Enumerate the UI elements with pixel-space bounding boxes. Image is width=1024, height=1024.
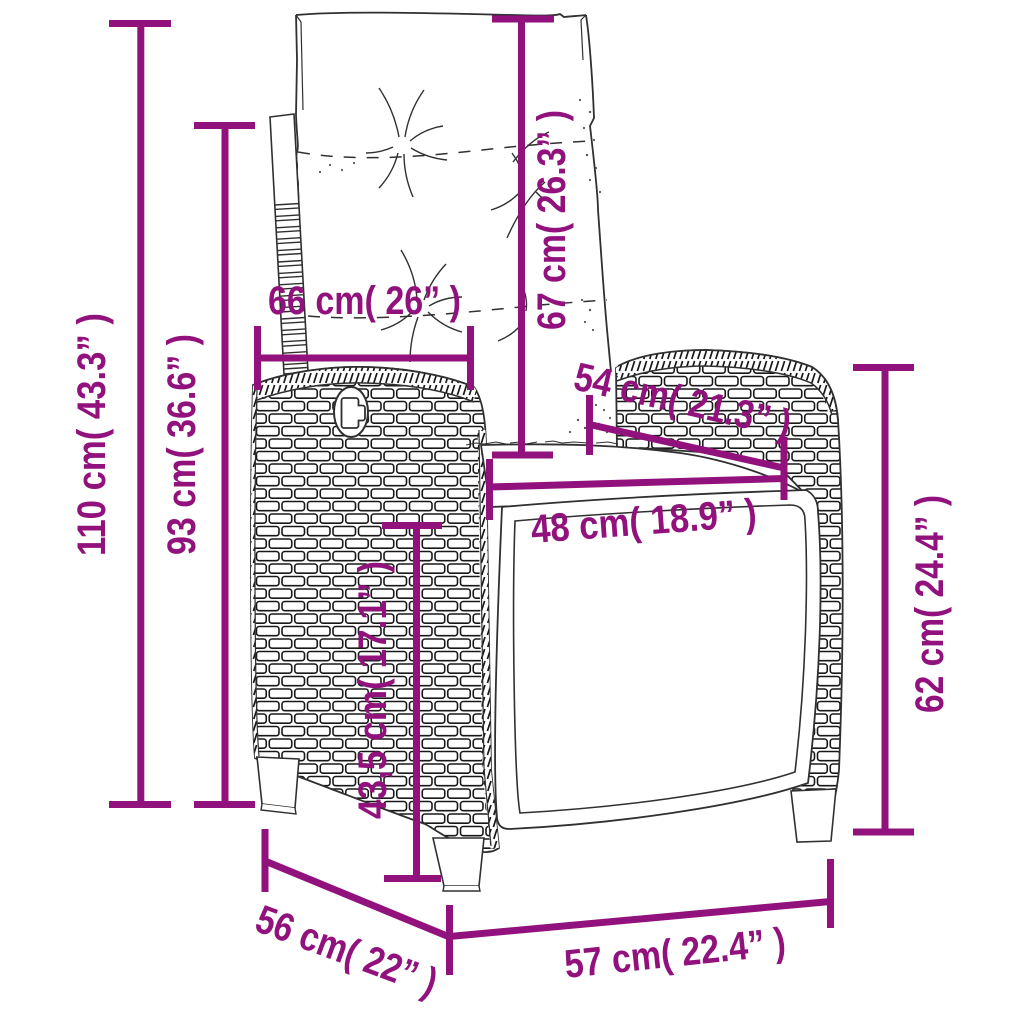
svg-text:110 cm( 43.3” ): 110 cm( 43.3” )	[70, 313, 114, 556]
svg-text:66 cm( 26” ): 66 cm( 26” )	[268, 279, 461, 323]
svg-text:43,5 cm( 17.1” ): 43,5 cm( 17.1” )	[351, 561, 395, 819]
svg-text:93 cm( 36.6” ): 93 cm( 36.6” )	[160, 334, 204, 555]
svg-text:62 cm( 24.4” ): 62 cm( 24.4” )	[908, 495, 952, 713]
svg-text:67 cm( 26.3” ): 67 cm( 26.3” )	[530, 110, 574, 330]
